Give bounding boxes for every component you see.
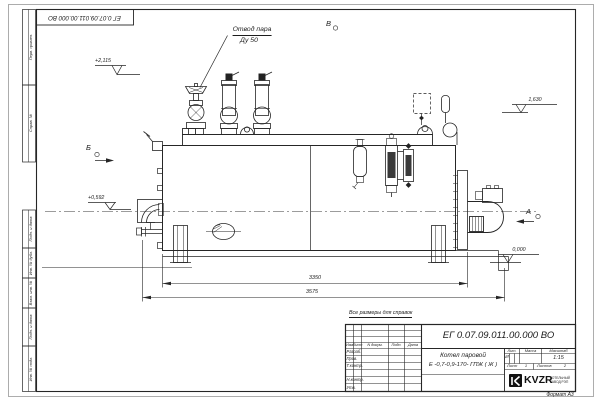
kvzr-logo-icon — [509, 374, 522, 387]
doc-number: ЕГ 0.07.09.011.00.000 ВО — [421, 331, 576, 341]
col-doc: N докум. — [367, 344, 382, 348]
elevation-right: 1,630 — [528, 98, 541, 103]
corner-valve — [144, 132, 163, 151]
dim-body-length: 3350 — [309, 276, 321, 282]
sig-row-utv: Утв. — [347, 386, 356, 390]
logo-kvzr-text: KVZR — [524, 375, 553, 386]
format-label: Формат А3 — [546, 393, 573, 398]
water-gauge-1 — [386, 134, 398, 197]
instrument-cylinder — [353, 140, 367, 190]
reference-note: Все размеры для справок — [349, 311, 412, 318]
level-sensor-dashed — [414, 94, 431, 126]
margin-label-podp-data-1: Подп. и дата — [29, 216, 33, 241]
support-leg-left — [170, 226, 191, 263]
lit-label: Лит. — [507, 349, 516, 353]
sheets-value: 2 — [564, 364, 566, 368]
elevation-zero: 0,000 — [512, 248, 525, 253]
view-arrows — [95, 26, 540, 224]
margin-label-inv-dubl: Инв. № дубл. — [29, 251, 33, 276]
dimension-3575 — [143, 240, 505, 302]
water-gauge-2 — [398, 143, 414, 188]
top-stamp-number: ЕГ 0.07.09.011.00.000 ВО — [36, 9, 133, 25]
drain-valve — [137, 223, 163, 237]
elevation-mid: +0,592 — [88, 196, 104, 201]
sig-row-razrab: Разраб. — [347, 350, 362, 354]
safety-valve-2 — [254, 72, 273, 135]
margin-label-podp-data-2: Подп. и дата — [29, 314, 33, 339]
steam-valve — [186, 84, 207, 135]
margin-label-inv-podl: Инв. № подл. — [29, 357, 33, 382]
platform — [183, 129, 433, 146]
sig-row-prov: Пров. — [347, 357, 358, 361]
mass-label: Масса — [525, 349, 537, 353]
margin-label-perv-primen: Перв. примен. — [29, 34, 33, 61]
view-marker-a: А — [526, 208, 531, 216]
steam-outlet-callout-line1: Отвод пара — [233, 27, 272, 36]
col-date: Дата — [408, 344, 418, 348]
product-name-line1: Котел паровой — [440, 353, 486, 359]
electrode-hook — [442, 96, 458, 146]
scale-label: Масштаб — [549, 349, 567, 353]
sig-row-nkontr: Н.контр. — [347, 378, 364, 382]
feed-elbow — [138, 200, 164, 223]
margin-label-sprav-no: Справ. № — [29, 114, 33, 132]
scale-value: 1:15 — [553, 356, 564, 362]
sheet-label: Лист — [507, 364, 517, 368]
steam-outlet-callout-line2: Ду 50 — [240, 38, 258, 45]
callout-leader — [200, 36, 228, 88]
drawing-sheet: ЕГ 0.07.09.011.00.000 ВО Перв. примен. С… — [0, 0, 600, 400]
burner — [468, 186, 504, 233]
product-name-line2: Е -0,7-0,9-170- ГПЖ ( Ж ) — [429, 363, 497, 369]
dimension-3350 — [163, 252, 468, 288]
sheet-value: 1 — [525, 364, 527, 368]
margin-label-vzam-inv: Взам. инв. № — [29, 281, 33, 306]
view-marker-b: Б — [86, 144, 91, 152]
lit-value: И — [505, 356, 508, 361]
view-marker-v: В — [326, 20, 331, 28]
sheets-label: Листов — [537, 364, 552, 368]
base-rail — [163, 251, 509, 271]
support-leg-right — [428, 226, 449, 263]
col-list: Лист — [353, 344, 363, 348]
col-sign: Подп. — [391, 344, 401, 348]
sig-row-tkontr: Т.контр. — [347, 364, 364, 368]
lifting-lug-2 — [418, 126, 433, 135]
logo-sub-line2: ЗАВОД РЭП — [550, 381, 568, 385]
manhole — [206, 224, 241, 240]
boiler-body — [163, 146, 456, 251]
elevation-top: +2,115 — [95, 59, 111, 64]
dim-overall-length: 3575 — [306, 290, 318, 296]
safety-valve-1 — [221, 72, 240, 135]
lifting-lug-1 — [241, 127, 254, 135]
